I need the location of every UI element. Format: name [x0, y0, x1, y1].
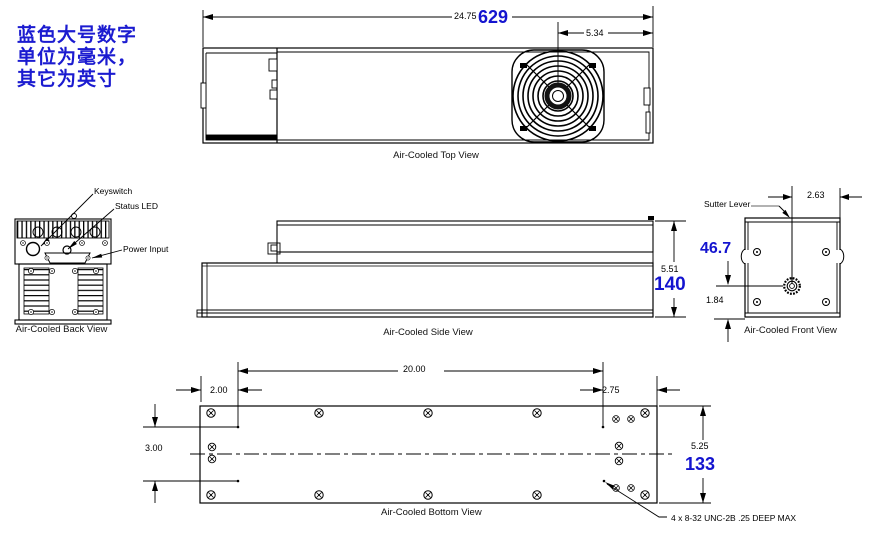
shutter-lever-leader [751, 206, 790, 218]
keyswitch [27, 243, 40, 256]
top-view-caption: Air-Cooled Top View [391, 150, 481, 161]
side-view-lid [268, 216, 654, 263]
shutter-lever-label: Sutter Lever [704, 199, 750, 209]
bottom-view-caption: Air-Cooled Bottom View [381, 507, 481, 518]
keyswitch-label: Keyswitch [94, 186, 132, 196]
power-input-label: Power Input [123, 244, 168, 254]
drawing-canvas: 蓝色大号数字 单位为毫米， 其它为英寸 24.75 629 5.34 Air-C… [0, 0, 877, 534]
dim-top-length-in: 24.75 [454, 11, 477, 21]
dim-bottom-width-mm: 133 [685, 455, 715, 473]
front-view-caption: Air-Cooled Front View [740, 325, 841, 336]
dim-aperture-height-in: 1.84 [706, 295, 724, 305]
thread-callout: 4 x 8-32 UNC-2B .25 DEEP MAX [671, 513, 796, 523]
top-view [201, 6, 653, 143]
dim-right-offset-in: 2.75 [602, 385, 620, 395]
bottom-view-outline [200, 406, 657, 503]
power-input-leader [92, 250, 122, 258]
dim-top-length-mm: 629 [478, 8, 508, 26]
dim-side-height-mm: 140 [654, 275, 686, 294]
back-view-heatsink [15, 264, 111, 324]
dim-right-offset-line [580, 376, 680, 406]
side-view-caption: Air-Cooled Side View [378, 327, 478, 338]
fan-hub [547, 85, 569, 107]
top-view-left-box [201, 53, 277, 140]
back-view [15, 194, 122, 324]
back-view-caption: Air-Cooled Back View [14, 324, 109, 335]
status-led-label: Status LED [115, 201, 158, 211]
dim-side-height-in: 5.51 [661, 264, 679, 274]
unit-note-line3: 其它为英寸 [17, 68, 137, 90]
dim-bottom-width-in: 5.25 [691, 441, 709, 451]
unit-note-line2: 单位为毫米， [17, 46, 137, 68]
dim-left-offset-in: 2.00 [210, 385, 228, 395]
dim-fan-offset-in: 5.34 [586, 28, 604, 38]
side-view-body [197, 263, 653, 317]
unit-note: 蓝色大号数字 单位为毫米， 其它为英寸 [17, 24, 137, 90]
front-view [714, 186, 862, 342]
dim-aperture-height-mm: 46.7 [700, 241, 731, 257]
dim-hole-width-in: 3.00 [145, 443, 163, 453]
dim-hole-span-in: 20.00 [403, 364, 426, 374]
dim-front-offset-in: 2.63 [807, 190, 825, 200]
side-view-rail [277, 252, 653, 263]
side-view [197, 216, 686, 317]
dim-hole-width-line [143, 404, 238, 503]
dim-top-length-line [203, 6, 653, 47]
unit-note-line1: 蓝色大号数字 [17, 24, 137, 46]
bottom-view [143, 362, 711, 517]
